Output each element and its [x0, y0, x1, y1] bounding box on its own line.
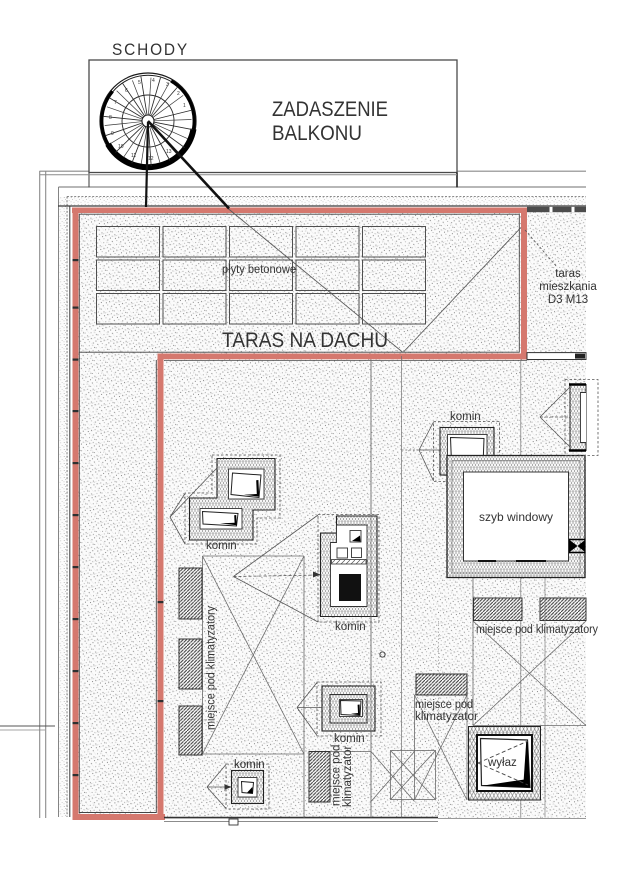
svg-text:6: 6: [125, 88, 128, 94]
svg-text:13: 13: [166, 149, 172, 155]
svg-text:komin: komin: [335, 621, 366, 633]
svg-text:płyty betonowe: płyty betonowe: [222, 264, 296, 276]
svg-text:komin: komin: [234, 759, 265, 771]
svg-text:klimatyzator: klimatyzator: [342, 745, 354, 807]
svg-text:miejsce pod klimatyzatory: miejsce pod klimatyzatory: [476, 624, 598, 636]
svg-text:wyłaz: wyłaz: [487, 757, 517, 769]
svg-text:9: 9: [111, 131, 114, 137]
svg-text:10: 10: [118, 144, 124, 150]
svg-text:miejsce pod: miejsce pod: [415, 699, 473, 711]
svg-text:SCHODY: SCHODY: [112, 40, 189, 59]
svg-text:TARAS NA DACHU: TARAS NA DACHU: [222, 329, 388, 352]
svg-text:D3 M13: D3 M13: [548, 294, 588, 306]
svg-text:komin: komin: [206, 540, 237, 552]
svg-text:8: 8: [109, 115, 112, 121]
svg-text:3: 3: [166, 82, 169, 88]
svg-text:11: 11: [131, 153, 136, 159]
svg-text:klimatyzator: klimatyzator: [415, 711, 478, 723]
svg-text:ZADASZENIE: ZADASZENIE: [272, 98, 388, 121]
svg-text:komin: komin: [450, 411, 481, 423]
svg-text:miejsce pod: miejsce pod: [331, 745, 343, 806]
svg-text:4: 4: [152, 78, 155, 84]
svg-text:5: 5: [138, 80, 141, 86]
svg-text:taras: taras: [555, 268, 581, 280]
svg-text:BALKONU: BALKONU: [272, 122, 362, 145]
svg-text:2: 2: [177, 91, 180, 97]
svg-text:7: 7: [114, 100, 117, 106]
svg-text:mieszkania: mieszkania: [539, 281, 597, 293]
svg-text:komin: komin: [334, 733, 365, 745]
svg-text:12: 12: [148, 156, 154, 162]
svg-text:miejsce pod klimatyzatory: miejsce pod klimatyzatory: [206, 606, 218, 730]
svg-text:1: 1: [183, 103, 186, 109]
svg-text:szyb windowy: szyb windowy: [479, 510, 553, 524]
